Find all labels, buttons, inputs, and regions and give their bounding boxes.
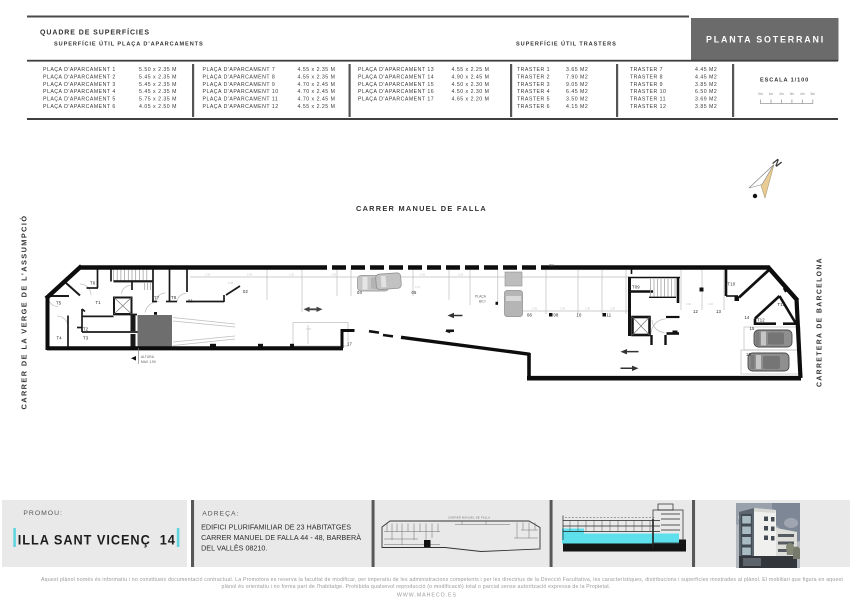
svg-text:ILLA SANT VICENÇ 14: ILLA SANT VICENÇ 14	[18, 533, 176, 548]
svg-text:T12: T12	[757, 318, 765, 323]
svg-text:SUPERFÍCIE ÚTIL TRASTERS: SUPERFÍCIE ÚTIL TRASTERS	[516, 40, 617, 48]
svg-text:01: 01	[188, 299, 194, 304]
svg-text:4.05 x 2.50 M: 4.05 x 2.50 M	[139, 104, 177, 110]
svg-text:PLAÇA D'APARCAMENT 7: PLAÇA D'APARCAMENT 7	[203, 67, 276, 73]
svg-text:TRASTER 1: TRASTER 1	[517, 67, 550, 73]
svg-text:4.70: 4.70	[415, 285, 421, 289]
svg-text:TRASTER 10: TRASTER 10	[630, 89, 666, 95]
svg-text:16: 16	[746, 352, 752, 357]
svg-text:CARRETERA DE BARCELONA: CARRETERA DE BARCELONA	[817, 257, 824, 387]
svg-text:PLAÇA D'APARCAMENT 8: PLAÇA D'APARCAMENT 8	[203, 74, 276, 80]
svg-text:CARRER MANUEL DE FALLA: CARRER MANUEL DE FALLA	[356, 206, 487, 213]
svg-text:4.90 x 2.45 M: 4.90 x 2.45 M	[452, 74, 490, 80]
svg-text:5m: 5m	[811, 92, 816, 96]
svg-text:4.55 x 2.35 M: 4.55 x 2.35 M	[298, 67, 336, 73]
svg-text:4.15 M2: 4.15 M2	[566, 104, 588, 110]
svg-text:PLAÇA D'APARCAMENT 16: PLAÇA D'APARCAMENT 16	[358, 89, 434, 95]
svg-text:2.45: 2.45	[532, 307, 538, 311]
svg-text:TRASTER 4: TRASTER 4	[517, 89, 550, 95]
svg-text:04: 04	[357, 290, 363, 295]
svg-text:1m: 1m	[769, 92, 774, 96]
svg-text:7.90 M2: 7.90 M2	[566, 74, 588, 80]
svg-text:12: 12	[693, 309, 699, 314]
svg-text:MAX 1.90: MAX 1.90	[141, 360, 156, 364]
svg-text:17: 17	[347, 342, 353, 347]
svg-text:plànol és orientatiu i no form: plànol és orientatiu i no forma part de …	[221, 584, 610, 590]
svg-text:CARRER MANUEL DE FALLA: CARRER MANUEL DE FALLA	[448, 516, 490, 520]
svg-text:4.50 x 2.30 M: 4.50 x 2.30 M	[452, 82, 490, 88]
svg-text:CARRER MANUEL DE FALLA 44 - 48: CARRER MANUEL DE FALLA 44 - 48, BARBERÀ	[201, 533, 361, 542]
svg-text:3m: 3m	[790, 92, 795, 96]
svg-text:PLAÇA D'APARCAMENT 14: PLAÇA D'APARCAMENT 14	[358, 74, 434, 80]
svg-text:4.55 x 2.25 M: 4.55 x 2.25 M	[452, 67, 490, 73]
svg-text:2.35: 2.35	[331, 273, 337, 277]
svg-text:T10: T10	[728, 282, 736, 287]
svg-text:5.45 x 2.35 M: 5.45 x 2.35 M	[139, 74, 177, 80]
svg-text:5.75 x 2.35 M: 5.75 x 2.35 M	[139, 97, 177, 103]
svg-text:TRASTER 6: TRASTER 6	[517, 104, 550, 110]
svg-text:ALTURA: ALTURA	[141, 355, 155, 359]
svg-text:ADREÇA:: ADREÇA:	[202, 511, 239, 518]
svg-text:TRASTER 8: TRASTER 8	[630, 74, 663, 80]
svg-text:4.70 x 2.45 M: 4.70 x 2.45 M	[298, 97, 336, 103]
svg-text:TRASTER 2: TRASTER 2	[517, 74, 550, 80]
svg-text:T2: T2	[83, 327, 89, 332]
svg-text:T7: T7	[154, 296, 160, 301]
svg-text:9.05 M2: 9.05 M2	[566, 82, 588, 88]
svg-text:Aquest plànol només és informa: Aquest plànol només és informatiu i no c…	[41, 577, 843, 583]
svg-text:T6: T6	[90, 281, 96, 286]
svg-text:T5: T5	[56, 301, 62, 306]
svg-text:PLAÇA D'APARCAMENT 10: PLAÇA D'APARCAMENT 10	[203, 89, 279, 95]
svg-text:PLAÇA D'APARCAMENT 1: PLAÇA D'APARCAMENT 1	[43, 67, 116, 73]
svg-text:T09: T09	[632, 285, 640, 290]
svg-text:ESCALA 1/100: ESCALA 1/100	[760, 78, 809, 84]
svg-text:PLAÇA D'APARCAMENT 6: PLAÇA D'APARCAMENT 6	[43, 104, 116, 110]
svg-text:PLAÇA D'APARCAMENT 12: PLAÇA D'APARCAMENT 12	[203, 104, 279, 110]
svg-text:T3: T3	[83, 336, 89, 341]
svg-text:3.65 M2: 3.65 M2	[566, 67, 588, 73]
svg-text:13: 13	[716, 309, 722, 314]
svg-text:5.45: 5.45	[228, 281, 234, 285]
svg-text:T11: T11	[778, 302, 786, 307]
svg-text:2.45: 2.45	[610, 307, 616, 311]
svg-text:4.45 M2: 4.45 M2	[695, 74, 717, 80]
svg-text:4.55 x 2.25 M: 4.55 x 2.25 M	[298, 104, 336, 110]
svg-text:PLAÇA: PLAÇA	[475, 295, 487, 299]
svg-text:2.35: 2.35	[247, 273, 253, 277]
svg-text:2.45: 2.45	[458, 273, 464, 277]
svg-text:08: 08	[554, 313, 560, 318]
svg-text:4.70 x 2.45 M: 4.70 x 2.45 M	[298, 82, 336, 88]
svg-text:PLAÇA D'APARCAMENT 2: PLAÇA D'APARCAMENT 2	[43, 74, 116, 80]
svg-text:02: 02	[243, 289, 249, 294]
svg-text:2m: 2m	[779, 92, 784, 96]
svg-text:2.30: 2.30	[708, 302, 714, 306]
svg-text:TRASTER 3: TRASTER 3	[517, 82, 550, 88]
svg-text:WWW.MAHECO.ES: WWW.MAHECO.ES	[397, 593, 457, 599]
svg-text:PROMOU:: PROMOU:	[23, 510, 62, 517]
svg-text:11: 11	[607, 313, 612, 318]
svg-text:T1: T1	[96, 300, 102, 305]
svg-text:6.50 M2: 6.50 M2	[695, 89, 717, 95]
svg-text:WV: WV	[549, 264, 555, 268]
svg-text:10: 10	[577, 313, 583, 318]
svg-text:QUADRE DE SUPERFÍCIES: QUADRE DE SUPERFÍCIES	[40, 28, 150, 37]
svg-text:05: 05	[412, 290, 418, 295]
svg-text:4m: 4m	[800, 92, 805, 96]
svg-text:15: 15	[750, 326, 756, 331]
svg-text:06: 06	[527, 313, 533, 318]
svg-text:4.65 x 2.20 M: 4.65 x 2.20 M	[452, 97, 490, 103]
svg-text:4.45 M2: 4.45 M2	[695, 67, 717, 73]
svg-text:0m: 0m	[758, 92, 763, 96]
svg-text:4.55 x 2.35 M: 4.55 x 2.35 M	[298, 74, 336, 80]
svg-text:5.45 x 2.35 M: 5.45 x 2.35 M	[139, 82, 177, 88]
svg-text:4.50 x 2.30 M: 4.50 x 2.30 M	[452, 89, 490, 95]
svg-text:2.45: 2.45	[420, 273, 426, 277]
svg-text:TRASTER 5: TRASTER 5	[517, 97, 550, 103]
svg-text:3.85 M2: 3.85 M2	[695, 104, 717, 110]
svg-text:2.30: 2.30	[686, 302, 692, 306]
svg-text:PLAÇA D'APARCAMENT 17: PLAÇA D'APARCAMENT 17	[358, 97, 434, 103]
svg-text:CARRER DE LA VERGE DE L'ASSUMP: CARRER DE LA VERGE DE L'ASSUMPCIÓ	[20, 215, 29, 410]
svg-text:PLAÇA D'APARCAMENT 9: PLAÇA D'APARCAMENT 9	[203, 82, 276, 88]
svg-text:PLAÇA D'APARCAMENT 11: PLAÇA D'APARCAMENT 11	[203, 97, 279, 103]
svg-text:4.65: 4.65	[306, 327, 312, 331]
svg-text:TRASTER 7: TRASTER 7	[630, 67, 663, 73]
svg-text:3.85 M2: 3.85 M2	[695, 82, 717, 88]
svg-text:2.45: 2.45	[585, 307, 591, 311]
svg-text:5.45 x 2.35 M: 5.45 x 2.35 M	[139, 89, 177, 95]
svg-text:PLAÇA D'APARCAMENT 3: PLAÇA D'APARCAMENT 3	[43, 82, 116, 88]
svg-text:4.70 x 2.45 M: 4.70 x 2.45 M	[298, 89, 336, 95]
svg-text:5.50 x 2.35 M: 5.50 x 2.35 M	[139, 67, 177, 73]
svg-text:3.69 M2: 3.69 M2	[695, 97, 717, 103]
svg-text:PLAÇA D'APARCAMENT 5: PLAÇA D'APARCAMENT 5	[43, 97, 116, 103]
svg-text:TRASTER 12: TRASTER 12	[630, 104, 666, 110]
svg-text:2.35: 2.35	[289, 273, 295, 277]
svg-text:PLAÇA D'APARCAMENT 15: PLAÇA D'APARCAMENT 15	[358, 82, 434, 88]
svg-text:6.45 M2: 6.45 M2	[566, 89, 588, 95]
svg-text:3.50 M2: 3.50 M2	[566, 97, 588, 103]
svg-text:T4: T4	[57, 336, 63, 341]
svg-text:PLAÇA D'APARCAMENT 13: PLAÇA D'APARCAMENT 13	[358, 67, 434, 73]
svg-text:T8: T8	[171, 295, 177, 300]
svg-text:BICI: BICI	[479, 300, 486, 304]
svg-text:PLAÇA D'APARCAMENT 4: PLAÇA D'APARCAMENT 4	[43, 89, 116, 95]
svg-text:PLANTA SOTERRANI: PLANTA SOTERRANI	[706, 35, 825, 45]
svg-text:14: 14	[745, 315, 751, 320]
svg-text:EDIFICI PLURIFAMILIAR DE 23 HA: EDIFICI PLURIFAMILIAR DE 23 HABITATGES	[201, 523, 351, 532]
svg-text:SUPERFÍCIE ÚTIL PLAÇA D'APARCA: SUPERFÍCIE ÚTIL PLAÇA D'APARCAMENTS	[54, 40, 204, 48]
svg-text:TRASTER 11: TRASTER 11	[630, 97, 666, 103]
svg-text:2.45: 2.45	[560, 307, 566, 311]
svg-text:TRASTER 9: TRASTER 9	[630, 82, 663, 88]
svg-text:DEL VALLÈS 08210.: DEL VALLÈS 08210.	[201, 544, 267, 553]
svg-text:2.35: 2.35	[205, 273, 211, 277]
